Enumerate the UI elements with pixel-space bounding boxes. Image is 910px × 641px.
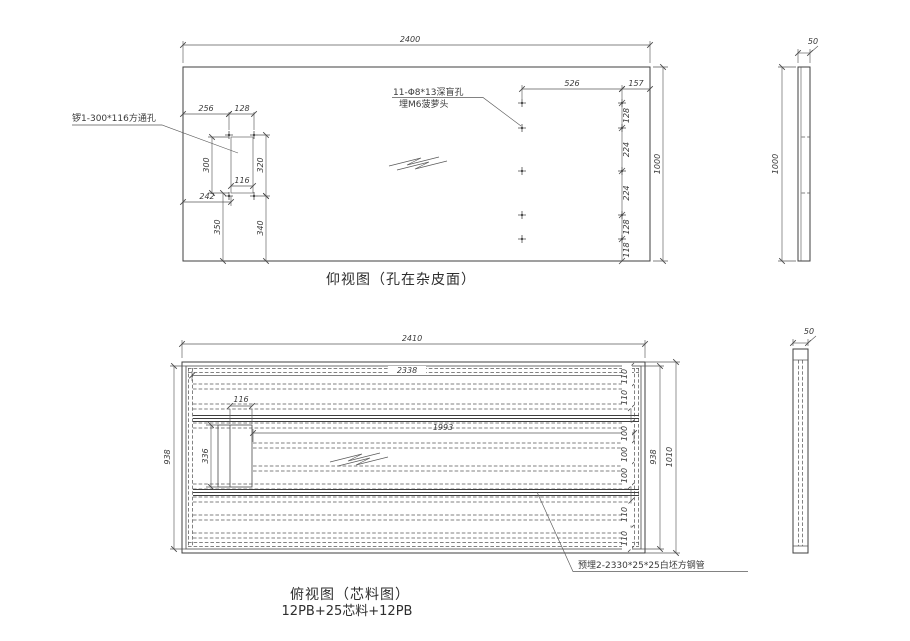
dim-label-bottom-thickness-50: 50 — [804, 327, 814, 336]
dim-label-2400: 2400 — [400, 35, 420, 44]
bchain-label-6: 110 — [620, 531, 629, 546]
top-view-caption: 仰视图（孔在杂皮面） — [326, 272, 476, 288]
blind-holes: 526 157 128 224 224 128 118 — [518, 79, 650, 264]
bchain-label-3: 100 — [620, 447, 629, 462]
tube-note-text: 预埋2-2330*25*25白坯方钢管 — [578, 559, 705, 571]
core-rails — [193, 384, 628, 538]
dim-label-350: 350 — [213, 219, 222, 234]
bottom-side-outline — [793, 349, 808, 553]
break-symbol-bottom — [330, 453, 388, 466]
dim-label-242: 242 — [199, 192, 214, 201]
dim-label-340: 340 — [256, 220, 265, 235]
top-view: 2400 1000 256 128 300 320 116 — [72, 35, 668, 288]
bchain-label-0: 110 — [620, 369, 629, 384]
chain-label-1: 224 — [622, 142, 631, 157]
bchain-label-4: 100 — [620, 468, 629, 483]
block-outline — [218, 425, 252, 487]
top-side-view: 50 1000 — [771, 37, 818, 261]
dim-label-1993: 1993 — [433, 423, 453, 432]
dim-label-thickness-50: 50 — [808, 37, 818, 46]
dim-label-938-right: 938 — [649, 449, 658, 464]
steel-tube-2 — [193, 490, 639, 496]
bottom-view-caption2: 12PB+25芯料+12PB — [282, 604, 413, 619]
steel-tubes — [193, 416, 639, 496]
dim-label-block-116: 116 — [233, 395, 248, 404]
bottom-view: 336 116 2410 2338 1993 938 938 1 — [163, 334, 748, 619]
blind-holes-note: 11-Φ8*13深盲孔 埋M6菠萝头 — [392, 86, 521, 126]
chain-label-4: 118 — [622, 242, 631, 257]
bottom-view-caption: 俯视图（芯料图） — [290, 587, 410, 603]
top-side-outline — [798, 67, 810, 261]
blind-holes-note-line2: 埋M6菠萝头 — [399, 98, 449, 110]
dim-label-938-left: 938 — [163, 449, 172, 464]
square-hole-note: 锣1-300*116方通孔 — [72, 112, 238, 153]
dim-label-2338: 2338 — [397, 366, 417, 375]
blind-holes-note-line1: 11-Φ8*13深盲孔 — [393, 86, 463, 98]
bchain-label-1: 110 — [620, 390, 629, 405]
dim-label-336: 336 — [201, 448, 210, 463]
tube-note: 预埋2-2330*25*25白坯方钢管 — [537, 492, 748, 572]
dim-overall-width: 2400 — [183, 35, 650, 63]
dim-label-526: 526 — [564, 79, 579, 88]
break-symbol-top — [389, 157, 447, 170]
bottom-view-inner — [186, 366, 641, 549]
dim-label-1010: 1010 — [665, 447, 674, 467]
square-hole-note-text: 锣1-300*116方通孔 — [72, 112, 156, 124]
dim-label-side-1000: 1000 — [771, 154, 780, 174]
dim-label-157: 157 — [628, 79, 644, 88]
dim-label-2410: 2410 — [402, 334, 422, 343]
bottom-view-outer — [182, 362, 645, 553]
bchain-label-2: 100 — [620, 426, 629, 441]
dim-label-320: 320 — [256, 157, 265, 172]
dim-label-116: 116 — [234, 176, 249, 185]
chain-label-3: 128 — [622, 219, 631, 234]
dim-label-128: 128 — [234, 104, 249, 113]
steel-tube-1 — [193, 416, 639, 422]
bchain-label-5: 110 — [620, 507, 629, 522]
dim-label-1000: 1000 — [653, 154, 662, 174]
cad-sheet: 2400 1000 256 128 300 320 116 — [0, 0, 910, 641]
bottom-side-view: 50 — [793, 327, 816, 553]
drawing-svg: 2400 1000 256 128 300 320 116 — [0, 0, 910, 641]
chain-label-0: 128 — [622, 108, 631, 123]
dim-overall-height: 1000 — [653, 67, 668, 261]
dim-label-256: 256 — [198, 104, 213, 113]
chain-label-2: 224 — [622, 185, 631, 200]
square-hole-group: 256 128 300 320 116 242 350 340 — [183, 104, 270, 261]
dim-label-300: 300 — [202, 157, 211, 172]
